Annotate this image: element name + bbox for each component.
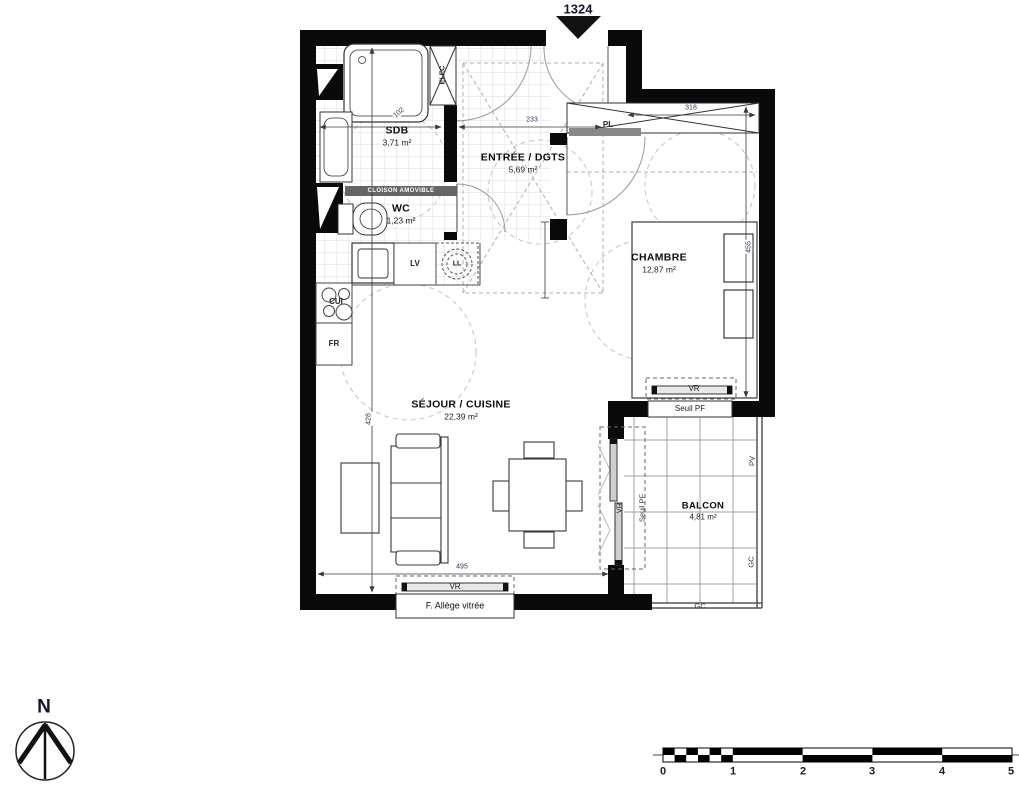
label-cloison-amovible: CLOISON AMOVIBLE (368, 188, 435, 194)
dining-set (493, 442, 582, 548)
room-area-sdb: 3,71 m² (383, 138, 412, 147)
room-label-wc: WC 1,23 m² (387, 204, 416, 225)
scale-bar (653, 748, 1019, 762)
shower (344, 44, 428, 122)
entrance-door-arc (544, 46, 608, 112)
label-dishwasher: LV (410, 260, 420, 268)
closet-pl (567, 103, 759, 136)
toilet (338, 203, 387, 235)
scale-tick-3: 3 (869, 767, 875, 778)
room-label-sejour: SÉJOUR / CUISINE 22,39 m² (411, 400, 510, 421)
room-name-wc: WC (387, 204, 416, 215)
north-compass-icon (16, 722, 74, 780)
room-area-sejour: 22,39 m² (411, 412, 510, 421)
closet-sliding-door (569, 128, 641, 136)
dim-placard-width: 318 (684, 105, 698, 112)
room-area-balcon: 4,81 m² (682, 513, 724, 521)
chair (524, 442, 554, 458)
room-name-chambre: CHAMBRE (631, 253, 687, 264)
scale-tick-2: 2 (800, 767, 806, 778)
label-vr-balcony-door: VR (615, 503, 623, 513)
floorplan-page: 1324 SDB 3,71 m² ENTRÉE / DGTS 5,69 m² W… (0, 0, 1019, 800)
room-name-entree: ENTRÉE / DGTS (481, 153, 565, 164)
kitchen-sink (352, 243, 394, 283)
room-label-balcon: BALCON 4,81 m² (682, 501, 724, 521)
room-area-entree: 5,69 m² (481, 165, 565, 174)
label-washing-machine: LL (453, 261, 462, 268)
label-seuil-pf-balcony-door: Seuil PF (638, 494, 646, 522)
bedroom-door-arc (567, 137, 645, 215)
sofa (391, 434, 448, 565)
label-seuil-pf-chambre: Seuil PF (675, 405, 705, 413)
chair (493, 481, 509, 511)
scale-tick-4: 4 (939, 767, 945, 778)
room-area-chambre: 12,87 m² (631, 265, 687, 274)
scale-tick-0: 0 (660, 767, 666, 778)
label-gc-bottom: GC (694, 602, 705, 610)
pillow (724, 290, 753, 338)
room-label-chambre: CHAMBRE 12,87 m² (631, 253, 687, 274)
label-placard: PL (603, 121, 613, 129)
room-area-wc: 1,23 m² (387, 216, 416, 225)
room-label-entree: ENTRÉE / DGTS 5,69 m² (481, 153, 565, 174)
north-label: N (37, 698, 51, 717)
dining-table (509, 459, 566, 531)
label-vr-facade: VR (449, 583, 460, 591)
label-pv: PV (748, 456, 756, 466)
apartment-number: 1324 (564, 3, 593, 16)
label-fridge: FR (329, 340, 340, 348)
room-name-balcon: BALCON (682, 501, 724, 511)
label-gc-right: GC (747, 556, 755, 567)
dim-sejour-depth: 428 (366, 412, 373, 426)
chair (566, 481, 582, 511)
scale-tick-5: 5 (1008, 767, 1014, 778)
label-cooktop: CUI (329, 298, 343, 306)
room-label-sdb: SDB 3,71 m² (383, 126, 412, 147)
room-name-sdb: SDB (383, 126, 412, 137)
chair (524, 532, 554, 548)
dim-facade-width: 495 (455, 564, 469, 571)
apartment-pointer (556, 16, 601, 39)
washbasin (320, 112, 352, 182)
scale-tick-1: 1 (730, 767, 736, 778)
label-elec: ELEC (440, 66, 447, 85)
label-vr-chambre: VR (688, 385, 699, 393)
dim-entree-width: 233 (525, 117, 539, 124)
room-name-sejour: SÉJOUR / CUISINE (411, 400, 510, 411)
dim-chambre-depth: 455 (746, 240, 753, 254)
label-allege-vitree: F. Allège vitrée (426, 602, 485, 611)
bed (632, 222, 757, 398)
coffee-table (341, 463, 379, 533)
